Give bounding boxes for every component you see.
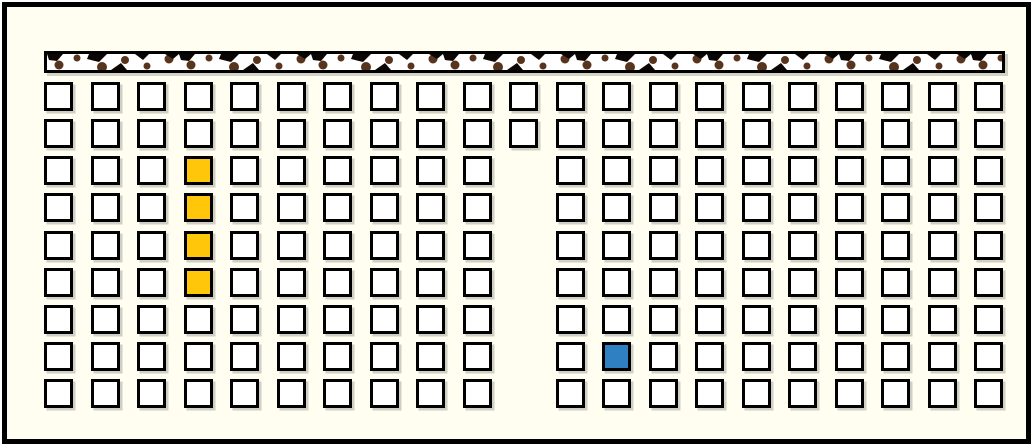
grid-cell[interactable]	[695, 305, 724, 334]
grid-cell[interactable]	[416, 119, 445, 148]
grid-cell[interactable]	[602, 119, 631, 148]
grid-cell[interactable]	[137, 379, 166, 408]
grid-cell[interactable]	[184, 342, 213, 371]
grid-cell[interactable]	[602, 82, 631, 111]
grid-cell[interactable]	[928, 305, 957, 334]
grid-cell[interactable]	[742, 193, 771, 222]
grid-cell[interactable]	[323, 156, 352, 185]
grid-cell[interactable]	[974, 119, 1003, 148]
grid-cell[interactable]	[788, 82, 817, 111]
grid-cell[interactable]	[137, 156, 166, 185]
grid-cell[interactable]	[835, 193, 864, 222]
grid-cell[interactable]	[323, 193, 352, 222]
grid-cell[interactable]	[230, 193, 259, 222]
grid-cell[interactable]	[323, 268, 352, 297]
grid-cell[interactable]	[44, 268, 73, 297]
wall-strip-texture-icon	[47, 54, 1002, 70]
grid-cell[interactable]	[788, 119, 817, 148]
grid-cell[interactable]	[742, 231, 771, 260]
grid-cell[interactable]	[137, 193, 166, 222]
grid-cell[interactable]	[463, 193, 492, 222]
grid-cell[interactable]	[928, 342, 957, 371]
grid-cell[interactable]	[323, 342, 352, 371]
grid-cell[interactable]	[602, 379, 631, 408]
grid-cell[interactable]	[184, 379, 213, 408]
grid-cell[interactable]	[463, 305, 492, 334]
grid-cell[interactable]	[602, 305, 631, 334]
grid-cell[interactable]	[137, 231, 166, 260]
grid-cell[interactable]	[463, 119, 492, 148]
grid-cell[interactable]	[556, 379, 585, 408]
grid-cell[interactable]	[91, 379, 120, 408]
grid-cell[interactable]	[835, 119, 864, 148]
grid-cell[interactable]	[463, 268, 492, 297]
grid-cell[interactable]	[649, 193, 678, 222]
grid-cell[interactable]	[416, 193, 445, 222]
grid-cell[interactable]	[649, 305, 678, 334]
grid-cell[interactable]	[742, 305, 771, 334]
grid-cell[interactable]	[416, 305, 445, 334]
grid-cell[interactable]	[695, 379, 724, 408]
grid-cell[interactable]	[277, 156, 306, 185]
grid-cell[interactable]	[974, 268, 1003, 297]
grid-cell-yellow[interactable]	[184, 156, 213, 185]
grid-cell[interactable]	[556, 342, 585, 371]
grid-cell[interactable]	[509, 119, 538, 148]
grid-cell[interactable]	[416, 156, 445, 185]
grid-cell[interactable]	[277, 379, 306, 408]
grid-cell[interactable]	[370, 82, 399, 111]
grid-cell[interactable]	[44, 231, 73, 260]
grid-cell[interactable]	[649, 379, 678, 408]
grid-cell[interactable]	[881, 156, 910, 185]
grid-cell[interactable]	[230, 379, 259, 408]
grid-cell[interactable]	[974, 193, 1003, 222]
grid-cell[interactable]	[370, 305, 399, 334]
grid-cell[interactable]	[881, 305, 910, 334]
grid-cell[interactable]	[881, 82, 910, 111]
grid-cell[interactable]	[463, 82, 492, 111]
grid-cell[interactable]	[184, 119, 213, 148]
grid-cell[interactable]	[323, 82, 352, 111]
grid-cell[interactable]	[556, 156, 585, 185]
grid-cell[interactable]	[44, 193, 73, 222]
grid-cell[interactable]	[928, 231, 957, 260]
grid-cell[interactable]	[44, 119, 73, 148]
grid-cell[interactable]	[742, 342, 771, 371]
grid-cell[interactable]	[835, 82, 864, 111]
grid-cell[interactable]	[602, 193, 631, 222]
grid-cell[interactable]	[370, 379, 399, 408]
grid-cell-yellow[interactable]	[184, 268, 213, 297]
grid-cell[interactable]	[974, 82, 1003, 111]
grid-cell[interactable]	[323, 379, 352, 408]
grid-cell[interactable]	[416, 342, 445, 371]
grid-cell[interactable]	[695, 82, 724, 111]
grid-cell[interactable]	[370, 231, 399, 260]
grid-cell[interactable]	[649, 119, 678, 148]
grid-cell[interactable]	[695, 231, 724, 260]
grid-cell[interactable]	[928, 82, 957, 111]
grid-cell[interactable]	[974, 305, 1003, 334]
grid-cell[interactable]	[91, 82, 120, 111]
grid-cell[interactable]	[881, 193, 910, 222]
grid-cell[interactable]	[463, 156, 492, 185]
grid-cell[interactable]	[184, 305, 213, 334]
grid-cell[interactable]	[788, 156, 817, 185]
grid-cell[interactable]	[881, 231, 910, 260]
grid-cell[interactable]	[277, 231, 306, 260]
grid-cell[interactable]	[742, 119, 771, 148]
grid-cell[interactable]	[788, 268, 817, 297]
grid-cell[interactable]	[695, 156, 724, 185]
grid-cell[interactable]	[230, 305, 259, 334]
grid-cell[interactable]	[556, 193, 585, 222]
grid-cell[interactable]	[277, 193, 306, 222]
grid-cell[interactable]	[788, 231, 817, 260]
grid-cell[interactable]	[835, 231, 864, 260]
grid-cell[interactable]	[416, 231, 445, 260]
grid-cell[interactable]	[184, 82, 213, 111]
grid-cell[interactable]	[928, 193, 957, 222]
grid-cell[interactable]	[370, 268, 399, 297]
grid-cell[interactable]	[91, 193, 120, 222]
game-canvas	[0, 0, 1033, 446]
board	[14, 14, 1033, 446]
grid-cell[interactable]	[788, 342, 817, 371]
grid-cell[interactable]	[649, 268, 678, 297]
grid-cell[interactable]	[370, 119, 399, 148]
grid-cell[interactable]	[91, 156, 120, 185]
grid-cell[interactable]	[137, 82, 166, 111]
grid-cell[interactable]	[230, 82, 259, 111]
grid-cell[interactable]	[370, 156, 399, 185]
grid-cell[interactable]	[416, 379, 445, 408]
grid-cell[interactable]	[881, 268, 910, 297]
grid-cell[interactable]	[788, 193, 817, 222]
grid-cell[interactable]	[974, 231, 1003, 260]
grid-cell[interactable]	[91, 305, 120, 334]
grid-cell[interactable]	[556, 305, 585, 334]
grid-cell[interactable]	[835, 342, 864, 371]
grid-cell[interactable]	[835, 268, 864, 297]
grid-cell[interactable]	[323, 231, 352, 260]
grid-cell[interactable]	[649, 231, 678, 260]
grid-cell[interactable]	[509, 82, 538, 111]
grid-cell[interactable]	[416, 82, 445, 111]
grid-cell[interactable]	[928, 119, 957, 148]
grid-cell[interactable]	[881, 119, 910, 148]
grid-cell[interactable]	[137, 119, 166, 148]
grid-cell[interactable]	[742, 379, 771, 408]
grid-cell[interactable]	[44, 342, 73, 371]
grid-cell[interactable]	[742, 156, 771, 185]
grid-cell[interactable]	[649, 82, 678, 111]
grid-cell[interactable]	[91, 119, 120, 148]
grid-cell[interactable]	[277, 268, 306, 297]
grid-cell[interactable]	[91, 268, 120, 297]
grid-cell[interactable]	[928, 268, 957, 297]
grid-cell[interactable]	[463, 342, 492, 371]
grid-cell[interactable]	[788, 305, 817, 334]
grid-cell-yellow[interactable]	[184, 193, 213, 222]
grid-cell[interactable]	[44, 82, 73, 111]
grid-cell[interactable]	[742, 82, 771, 111]
grid-cell[interactable]	[463, 379, 492, 408]
grid-cell-blue[interactable]	[602, 342, 631, 371]
board-frame	[2, 2, 1031, 444]
grid-cell[interactable]	[835, 379, 864, 408]
grid-cell[interactable]	[230, 268, 259, 297]
grid-cell[interactable]	[556, 82, 585, 111]
grid-cell[interactable]	[323, 119, 352, 148]
grid-cell[interactable]	[137, 342, 166, 371]
grid-cell[interactable]	[277, 119, 306, 148]
grid-cell[interactable]	[370, 193, 399, 222]
grid-cell[interactable]	[974, 156, 1003, 185]
grid-cell[interactable]	[835, 156, 864, 185]
grid-cell[interactable]	[230, 119, 259, 148]
grid-cell[interactable]	[649, 342, 678, 371]
grid-cell[interactable]	[974, 379, 1003, 408]
grid-cell[interactable]	[556, 268, 585, 297]
grid-cell[interactable]	[137, 268, 166, 297]
grid-cell[interactable]	[602, 156, 631, 185]
grid-cell[interactable]	[323, 305, 352, 334]
grid-cell[interactable]	[91, 231, 120, 260]
grid-cell[interactable]	[556, 231, 585, 260]
grid-cell[interactable]	[742, 268, 771, 297]
grid-cell[interactable]	[277, 82, 306, 111]
grid-cell[interactable]	[416, 268, 445, 297]
grid-cell-yellow[interactable]	[184, 231, 213, 260]
grid-cell[interactable]	[44, 156, 73, 185]
grid-cell[interactable]	[277, 342, 306, 371]
grid-cell[interactable]	[230, 342, 259, 371]
grid-cell[interactable]	[230, 156, 259, 185]
grid-cell[interactable]	[695, 268, 724, 297]
grid-cell[interactable]	[137, 305, 166, 334]
grid-cell[interactable]	[230, 231, 259, 260]
grid-cell[interactable]	[602, 268, 631, 297]
grid-cell[interactable]	[695, 193, 724, 222]
grid-cell[interactable]	[881, 379, 910, 408]
grid-cell[interactable]	[695, 342, 724, 371]
grid-cell[interactable]	[463, 231, 492, 260]
grid-cell[interactable]	[928, 379, 957, 408]
grid-cell[interactable]	[974, 342, 1003, 371]
grid-cell[interactable]	[44, 305, 73, 334]
grid-cell[interactable]	[695, 119, 724, 148]
grid-cell[interactable]	[602, 231, 631, 260]
grid-cell[interactable]	[91, 342, 120, 371]
grid-cell[interactable]	[277, 305, 306, 334]
grid-cell[interactable]	[881, 342, 910, 371]
grid-cell[interactable]	[370, 342, 399, 371]
grid-cell[interactable]	[649, 156, 678, 185]
grid-cell[interactable]	[788, 379, 817, 408]
grid-cell[interactable]	[556, 119, 585, 148]
grid-cell[interactable]	[44, 379, 73, 408]
grid-cell[interactable]	[928, 156, 957, 185]
grid-cell[interactable]	[835, 305, 864, 334]
wall-strip	[44, 51, 1005, 73]
